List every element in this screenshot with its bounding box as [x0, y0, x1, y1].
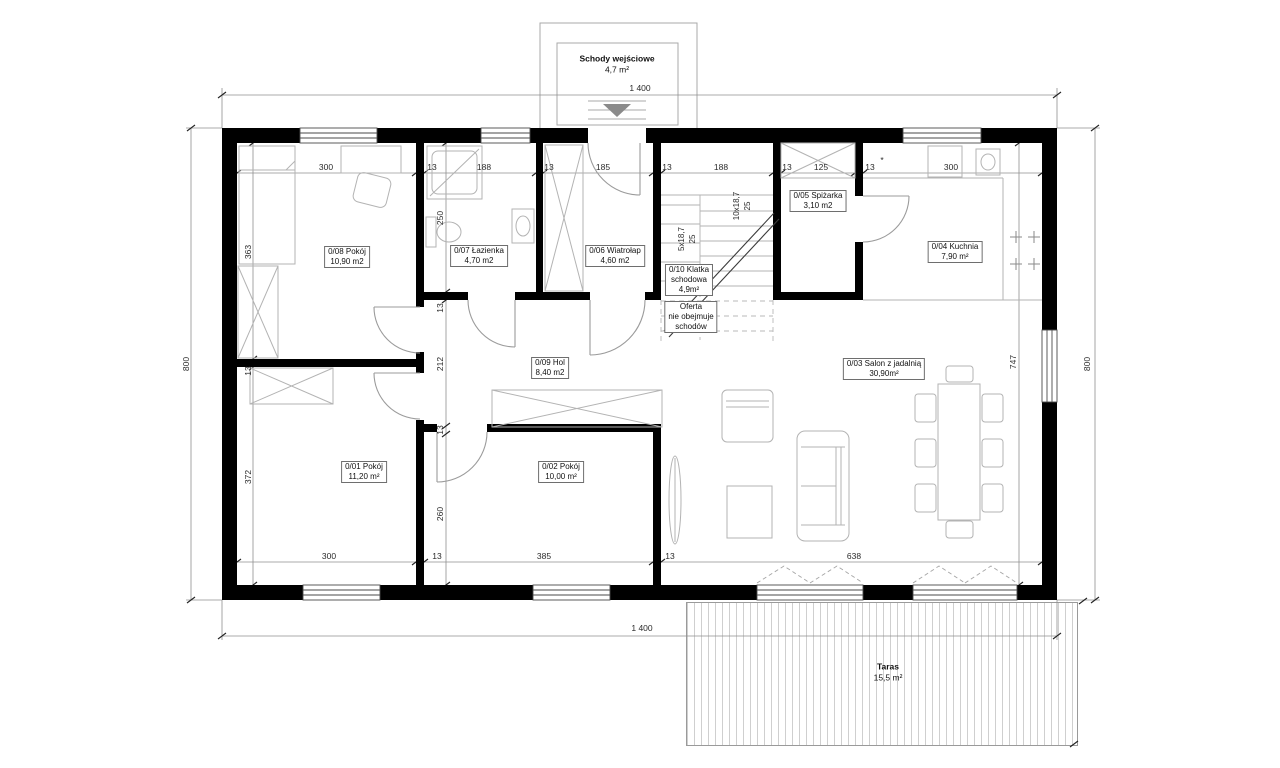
- sofa-salon: [797, 431, 849, 541]
- dim-bottom-5: 638: [847, 552, 861, 561]
- window-room02: [533, 585, 610, 600]
- stair-flight1-tread: 25: [689, 235, 697, 244]
- dim-bottom-1: 300: [322, 552, 336, 561]
- door-room02: [437, 432, 487, 482]
- dim-mid-2: 13: [436, 303, 445, 312]
- armchair-salon: [722, 390, 773, 442]
- room-label-05: 0/05 Spiżarka3,10 m2: [790, 190, 847, 212]
- dim-top-9: 125: [814, 163, 828, 172]
- dim-top-4: 13: [544, 163, 553, 172]
- dim-top-2: 13: [427, 163, 436, 172]
- dim-top-11: 300: [944, 163, 958, 172]
- room-label-07: 0/07 Łazienka4,70 m2: [450, 245, 508, 267]
- floor-plan-drawing: [0, 0, 1280, 768]
- dim-mid-5: 260: [436, 507, 445, 521]
- room-label-10-stairwell: 0/10 Klatka schodowa 4,9m²: [665, 264, 713, 296]
- terrace-door-opening-symbols: [757, 566, 1017, 583]
- plant-salon: [669, 456, 681, 544]
- door-room08: [374, 307, 420, 353]
- room-label-08: 0/08 Pokój10,90 m2: [324, 246, 370, 268]
- shower-bathroom: [427, 146, 482, 199]
- terrace-label: Taras 15,5 m²: [874, 661, 903, 682]
- room-label-09: 0/09 Hol8,40 m2: [531, 357, 569, 379]
- wardrobe-room08: [238, 266, 278, 358]
- kitchen-sink: [976, 149, 1000, 175]
- dim-top-5: 185: [596, 163, 610, 172]
- floor-plan-page: Schody wejściowe 4,7 m² 0/08 Pokój10,90 …: [0, 0, 1280, 768]
- dim-left-1: 363: [244, 245, 253, 259]
- dim-overall-width-bottom: 1 400: [631, 624, 652, 633]
- dim-mid-3: 212: [436, 357, 445, 371]
- stair-flight2-label: 10x18,7: [733, 192, 741, 220]
- dimension-ticks: [187, 92, 1099, 747]
- dim-overall-depth-right: 800: [1083, 357, 1092, 371]
- door-bathroom: [468, 300, 515, 347]
- dim-salon-depth: 747: [1009, 355, 1018, 369]
- dim-overall-width-top: 1 400: [629, 84, 650, 93]
- window-salon-east: [1042, 330, 1057, 402]
- dim-bottom-3: 385: [537, 552, 551, 561]
- door-room01: [374, 373, 420, 419]
- dim-top-6: 13: [662, 163, 671, 172]
- stair-flight2-tread: 25: [744, 202, 752, 211]
- dim-footnote-asterisk: *: [880, 156, 883, 165]
- window-kitchen: [903, 128, 981, 143]
- stair-flight1-label: 5x18,7: [678, 227, 686, 251]
- dim-bottom-2: 13: [432, 552, 441, 561]
- door-pantry: [863, 196, 909, 242]
- dim-mid-4: 13: [436, 425, 445, 434]
- window-room01: [303, 585, 380, 600]
- room-label-04: 0/04 Kuchnia7,90 m²: [928, 241, 983, 263]
- entrance-stairs-label: Schody wejściowe 4,7 m²: [579, 53, 654, 74]
- dim-top-7: 188: [714, 163, 728, 172]
- wardrobe-room01: [250, 368, 333, 404]
- room-label-06: 0/06 Wiatrołap4,60 m2: [585, 245, 645, 267]
- coffee-table-salon: [727, 486, 772, 538]
- window-bathroom: [481, 128, 530, 143]
- door-vestibule: [590, 300, 645, 355]
- window-room08: [300, 128, 377, 143]
- dim-mid-1: 250: [436, 211, 445, 225]
- dim-left-3: 372: [244, 470, 253, 484]
- room-label-02: 0/02 Pokój10,00 m²: [538, 461, 584, 483]
- stove-burners: [1010, 231, 1040, 270]
- dim-top-1: 300: [319, 163, 333, 172]
- terrace-door-west: [757, 585, 863, 600]
- room-label-01: 0/01 Pokój11,20 m²: [341, 461, 387, 483]
- dim-bottom-4: 13: [665, 552, 674, 561]
- room-label-03: 0/03 Salon z jadalnią30,90m²: [843, 358, 925, 380]
- dim-top-10: 13: [865, 163, 874, 172]
- entrance-stairs-outline: [540, 23, 697, 128]
- dim-overall-depth-left: 800: [182, 357, 191, 371]
- dim-left-2: 13: [244, 366, 253, 375]
- desk-room08: [341, 146, 401, 209]
- furniture: [238, 143, 1042, 544]
- sink-bathroom: [512, 209, 534, 243]
- wardrobe-hall: [492, 390, 662, 427]
- stairs-note: Oferta nie obejmuje schodów: [664, 301, 717, 333]
- dim-top-8: 13: [782, 163, 791, 172]
- dining-table-set: [915, 366, 1003, 538]
- dim-top-3: 188: [477, 163, 491, 172]
- terrace-door-east: [913, 585, 1017, 600]
